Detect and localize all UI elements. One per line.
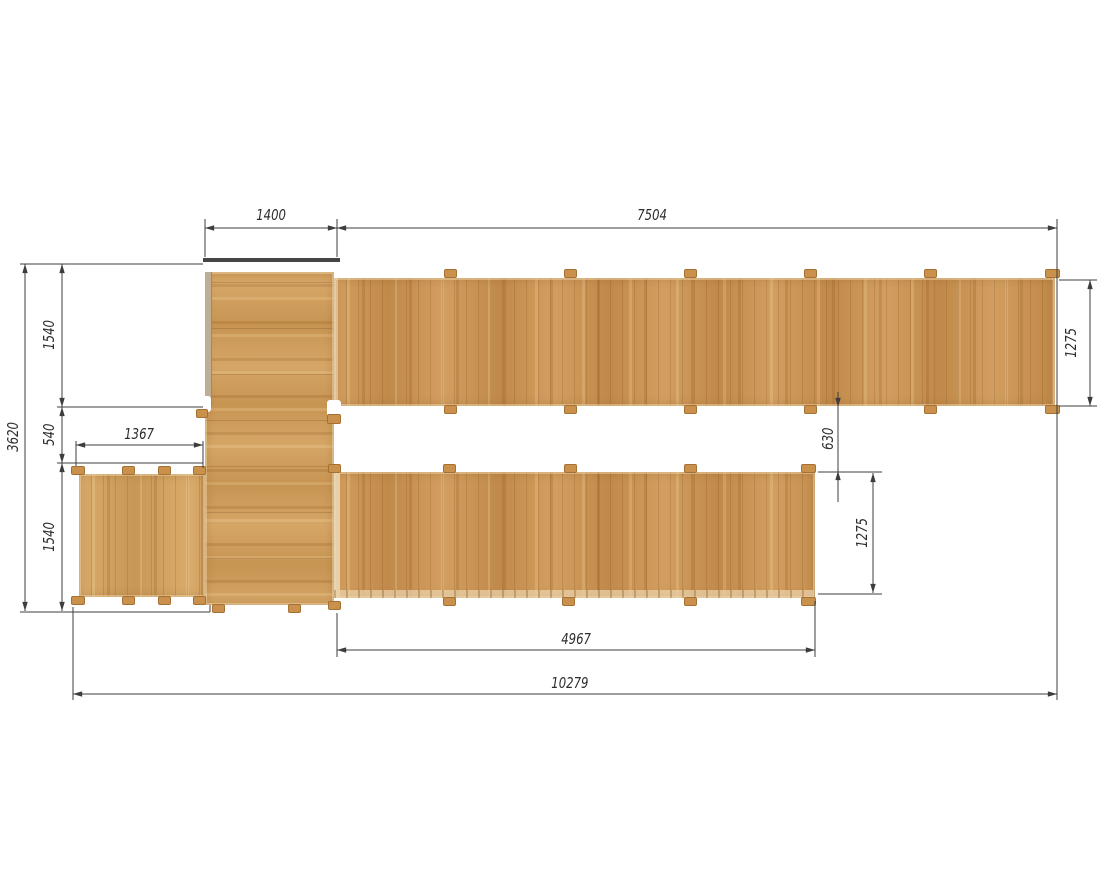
deck-tab (122, 596, 135, 605)
deck-tab (562, 597, 575, 606)
deck-tab (443, 597, 456, 606)
dim-label-3620: 3620 (4, 397, 22, 477)
platform-edge-board (205, 272, 212, 406)
dim-label-10279: 10279 (530, 674, 610, 692)
deck-tab (122, 466, 135, 475)
deck-tab (193, 596, 206, 605)
dim-value: 10279 (551, 674, 588, 692)
dim-label-4967: 4967 (536, 630, 616, 648)
dim-value: 1275 (853, 518, 871, 548)
dim-value: 630 (819, 428, 837, 450)
upper-walkway-left-rim (334, 278, 338, 406)
deck-tab (804, 269, 817, 278)
top-edge-board (203, 258, 340, 262)
side-deck (79, 474, 205, 597)
deck-tab (443, 464, 456, 473)
deck-corner-tab (328, 464, 341, 473)
deck-tab (212, 604, 225, 613)
dim-value: 1540 (40, 522, 58, 552)
dim-label-1540-lower: 1540 (40, 497, 58, 577)
dim-value: 4967 (561, 630, 591, 648)
deck-corner-tab (801, 464, 816, 473)
dim-label-7504: 7504 (612, 206, 692, 224)
deck-corner-tab (328, 601, 341, 610)
deck-tab (684, 405, 697, 414)
deck-tab (804, 405, 817, 414)
dim-value: 1367 (124, 425, 154, 443)
lower-walkway-deck (334, 472, 815, 598)
deck-tab (684, 464, 697, 473)
dim-label-1275-right: 1275 (1062, 303, 1080, 383)
deck-side-tab (327, 414, 341, 424)
deck-corner-tab (71, 596, 85, 605)
deck-tab (924, 269, 937, 278)
deck-tab (924, 405, 937, 414)
dim-value: 3620 (4, 422, 22, 452)
dim-label-1540-upper: 1540 (40, 295, 58, 375)
deck-tab (288, 604, 301, 613)
dim-value: 1400 (256, 206, 286, 224)
dim-label-1367: 1367 (99, 425, 179, 443)
deck-tab (444, 405, 457, 414)
dim-label-1400: 1400 (231, 206, 311, 224)
deck-tab (564, 405, 577, 414)
deck-tab (158, 466, 171, 475)
dim-label-1275-mid: 1275 (853, 493, 871, 573)
dim-value: 1540 (40, 320, 58, 350)
lower-walkway-left-rim (334, 472, 340, 598)
deck-tab (684, 269, 697, 278)
deck-tab (444, 269, 457, 278)
upper-walkway-deck (334, 278, 1055, 406)
dim-value: 540 (40, 424, 58, 446)
center-platform-deck (205, 272, 334, 605)
drawing-canvas: 1400 7504 3620 1540 540 1367 1540 1275 6… (0, 0, 1110, 879)
deck-tab (564, 464, 577, 473)
dim-label-540: 540 (40, 395, 58, 475)
deck-corner-tab (1045, 405, 1060, 414)
deck-tab (193, 466, 206, 475)
deck-tab (158, 596, 171, 605)
dim-value: 7504 (637, 206, 667, 224)
deck-tab (564, 269, 577, 278)
deck-tab (684, 597, 697, 606)
deck-corner-tab (801, 597, 816, 606)
deck-corner-tab (71, 466, 85, 475)
deck-corner-tab (1045, 269, 1060, 278)
deck-side-tab (196, 409, 208, 418)
dim-value: 1275 (1062, 328, 1080, 358)
dim-label-630: 630 (819, 399, 837, 479)
